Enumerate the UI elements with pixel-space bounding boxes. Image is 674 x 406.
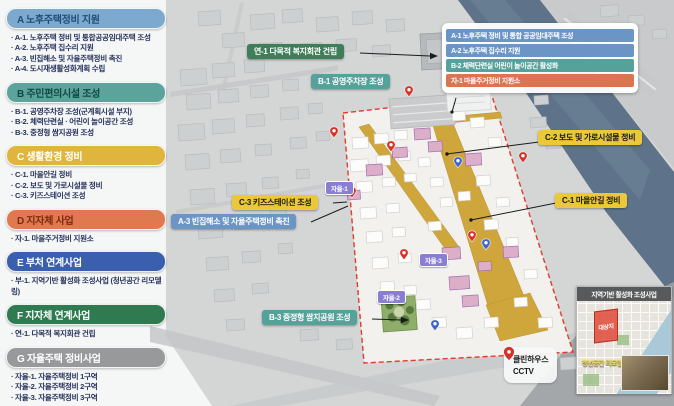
project-info-box: A-1 노후주택 정비 및 통합 공공임대주택 조성 A-2 노후주택 집수리 … <box>442 23 638 93</box>
building <box>600 5 619 17</box>
inset-green-patch <box>583 374 599 386</box>
building <box>418 157 431 167</box>
building <box>198 10 221 26</box>
building <box>374 133 389 144</box>
sidebar-item: B-3. 중정형 쌈지공원 조성 <box>11 128 166 138</box>
building <box>360 207 377 219</box>
project-legend-sidebar: A 노후주택정비 지원 A-1. 노후주택 정비 및 통합공공임대주택 조성 A… <box>6 8 166 406</box>
building <box>484 219 499 230</box>
building <box>180 68 207 86</box>
sidebar-section-b: B 주민편의시설 조성 B-1. 공영주차장 조성(군계획시설 부지) B-2.… <box>6 82 166 138</box>
sidebar-item: A-1. 노후주택 정비 및 통합공공임대주택 조성 <box>11 33 166 43</box>
callout-b3: B-3 중정형 쌈지공원 조성 <box>262 310 357 325</box>
inset-target-area: 대상지 <box>594 309 618 344</box>
inset-map-body: 대상지 청년공간 리모델링 <box>577 301 671 394</box>
building <box>282 79 299 91</box>
sidebar-section-a: A 노후주택정비 지원 A-1. 노후주택 정비 및 통합공공임대주택 조성 A… <box>6 8 166 75</box>
building <box>470 117 485 128</box>
building <box>206 256 229 271</box>
building <box>352 137 369 149</box>
building <box>352 11 373 25</box>
zone-badge-3: 자율-3 <box>419 253 448 267</box>
sidebar-item: 연-1. 다목적 복지회관 건립 <box>11 329 166 339</box>
building <box>372 45 391 57</box>
building <box>484 317 499 328</box>
sidebar-item: 자율-2. 자율주택정비 2구역 <box>11 382 166 392</box>
section-f-header: F 지자체 연계사업 <box>6 304 166 325</box>
building <box>220 149 241 163</box>
section-e-header: E 부처 연계사업 <box>6 251 166 272</box>
building <box>414 128 431 140</box>
building <box>449 276 470 290</box>
info-row-ja1: 자-1 마을주거정비 지원소 <box>446 74 634 87</box>
building <box>456 327 473 339</box>
building <box>250 13 275 30</box>
sidebar-section-f: F 지자체 연계사업 연-1. 다목적 복지회관 건립 <box>6 304 166 339</box>
building <box>404 285 417 295</box>
building <box>214 289 235 302</box>
sidebar-section-c: C 생활환경 정비 C-1. 마을안길 정비 C-2. 보도 및 가로시설물 정… <box>6 145 166 201</box>
parking-lot <box>389 95 455 129</box>
building <box>250 85 269 98</box>
callout-yeon1: 연-1 다목적 복지회관 건립 <box>247 44 344 59</box>
building <box>534 95 549 105</box>
building <box>316 131 330 141</box>
building <box>514 297 528 307</box>
building <box>488 137 502 147</box>
sidebar-item: A-4. 도시재생활성화계획 수립 <box>11 64 166 74</box>
legend-label: CCTV <box>513 367 534 376</box>
building <box>185 153 210 170</box>
callout-c1: C-1 마을안길 정비 <box>555 193 627 208</box>
building <box>428 221 442 231</box>
building <box>462 295 479 307</box>
screenshot-root: A 노후주택정비 지원 A-1. 노후주택 정비 및 통합공공임대주택 조성 A… <box>0 0 674 406</box>
building <box>226 319 245 331</box>
info-row-a2: A-2 노후주택 집수리 지원 <box>446 44 634 57</box>
building <box>524 269 538 279</box>
map-legend: 클린하우스 CCTV <box>504 347 557 383</box>
building <box>652 29 667 39</box>
building <box>222 32 245 48</box>
sidebar-section-e: E 부처 연계사업 부-1. 지역기반 활성화 조성사업 (청년공간 리모델링) <box>6 251 166 297</box>
sidebar-item: 자율-1. 자율주택정비 1구역 <box>11 372 166 382</box>
inset-map: 지역기반 활성화 조성사업 대상지 청년공간 리모델링 <box>576 286 672 394</box>
building <box>190 188 215 205</box>
building <box>252 283 269 294</box>
building <box>465 153 482 166</box>
building <box>476 175 491 186</box>
info-row-a1: A-1 노후주택 정비 및 통합 공공임대주택 조성 <box>446 29 634 42</box>
inset-green-patch <box>617 335 629 345</box>
section-a-header: A 노후주택정비 지원 <box>6 8 166 29</box>
callout-a3: A-3 빈집해소 및 자율주택정비 촉진 <box>171 214 296 229</box>
building <box>336 339 353 350</box>
section-g-header: G 자율주택 정비사업 <box>6 347 166 368</box>
sidebar-item: C-1. 마을안길 정비 <box>11 170 166 180</box>
sidebar-item: 자율-3. 자율주택정비 3구역 <box>11 393 166 403</box>
sidebar-section-d: D 지자체 사업 자-1. 마을주거정비 지원소 <box>6 209 166 244</box>
sidebar-item: 부-1. 지역기반 활성화 조성사업 (청년공간 리모델링) <box>11 276 166 297</box>
inset-title: 지역기반 활성화 조성사업 <box>577 287 671 301</box>
building <box>496 197 510 207</box>
section-d-header: D 지자체 사업 <box>6 209 166 230</box>
callout-c2: C-2 보도 및 가로시설물 정비 <box>538 130 642 145</box>
building <box>452 111 466 121</box>
building <box>428 141 443 152</box>
sidebar-item: B-1. 공영주차장 조성(군계획시설 부지) <box>11 107 166 117</box>
cctv-pin-icon <box>504 347 514 360</box>
building <box>212 62 235 78</box>
building <box>296 169 310 179</box>
sidebar-section-g: G 자율주택 정비사업 자율-1. 자율주택정비 1구역 자율-2. 자율주택정… <box>6 347 166 403</box>
sidebar-item: 자-1. 마을주거정비 지원소 <box>11 234 166 244</box>
building <box>392 147 408 158</box>
sidebar-item: A-3. 빈집해소 및 자율주택정비 촉진 <box>11 54 166 64</box>
zone-badge-1: 자율-1 <box>325 181 354 195</box>
section-c-header: C 생활환경 정비 <box>6 145 166 166</box>
building <box>478 261 492 271</box>
building <box>246 114 265 127</box>
building <box>538 317 553 328</box>
building <box>506 237 519 247</box>
building <box>218 89 239 103</box>
sidebar-item: A-2. 노후주택 집수리 지원 <box>11 43 166 53</box>
sidebar-item: C-2. 보도 및 가로시설물 정비 <box>11 181 166 191</box>
legend-label: 클린하우스 <box>513 354 548 365</box>
building <box>386 203 400 213</box>
building <box>290 137 307 149</box>
building <box>416 299 431 310</box>
building <box>372 257 389 269</box>
building <box>386 19 405 32</box>
building <box>392 227 406 237</box>
building <box>394 130 408 140</box>
building <box>278 243 293 254</box>
building <box>503 246 519 258</box>
building <box>186 93 211 110</box>
building <box>178 123 205 141</box>
building <box>382 177 396 187</box>
building <box>530 117 547 128</box>
building <box>366 231 383 243</box>
building <box>430 177 444 187</box>
building <box>308 103 323 114</box>
building <box>458 191 471 201</box>
callout-b1: B-1 공영주차장 조성 <box>311 74 390 89</box>
building <box>242 251 261 263</box>
building <box>440 197 453 207</box>
building <box>255 144 272 156</box>
building <box>316 16 339 32</box>
section-b-header: B 주민편의시설 조성 <box>6 82 166 103</box>
info-row-b2: B-2 체력단련실 어린이 놀이공간 활성화 <box>446 59 634 72</box>
building <box>280 107 299 120</box>
sidebar-item: C-3. 키즈스테이션 조성 <box>11 191 166 201</box>
building <box>212 118 235 134</box>
building <box>282 9 303 23</box>
building <box>404 173 417 182</box>
callout-c3: C-3 키즈스테이션 조성 <box>232 195 318 210</box>
building <box>300 329 319 341</box>
legend-cctv: CCTV <box>513 367 548 376</box>
legend-cleanhouse: 클린하우스 <box>513 354 548 365</box>
inset-photo <box>621 355 669 391</box>
building <box>244 59 265 73</box>
building <box>366 164 383 176</box>
sidebar-item: B-2. 체력단련실 · 어린이 놀이공간 조성 <box>11 117 166 127</box>
zone-badge-2: 자율-2 <box>377 290 406 304</box>
building <box>262 177 279 189</box>
